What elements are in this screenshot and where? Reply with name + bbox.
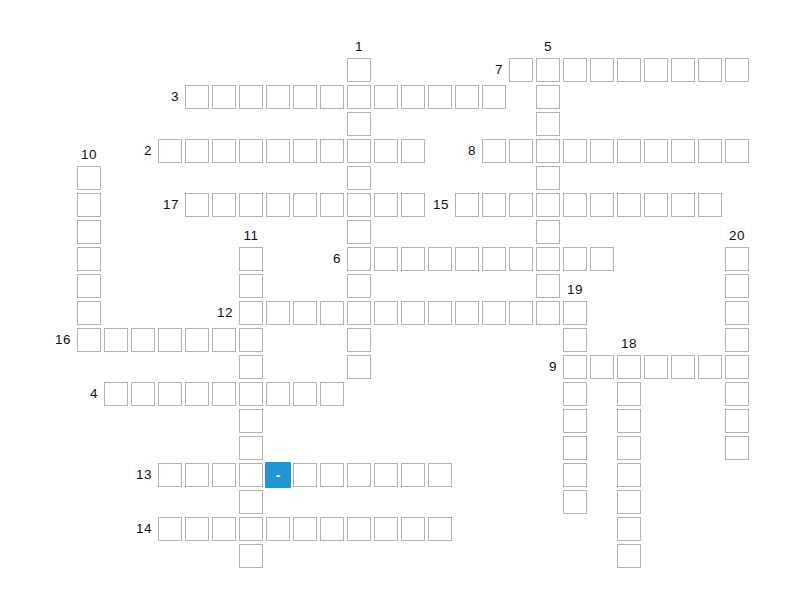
cell-19-7[interactable]: [563, 463, 587, 487]
cell-8-7[interactable]: [644, 139, 668, 163]
cell-7-3[interactable]: [563, 58, 587, 82]
cell-1-12[interactable]: [347, 355, 371, 379]
cell-14-9[interactable]: [374, 517, 398, 541]
cell-2-3[interactable]: [212, 139, 236, 163]
cell-6-6[interactable]: [482, 247, 506, 271]
cell-8-10[interactable]: [725, 139, 749, 163]
cell-5-3[interactable]: [536, 112, 560, 136]
cell-6-9[interactable]: [563, 247, 587, 271]
cell-13-3[interactable]: [212, 463, 236, 487]
cell-11-7[interactable]: [239, 409, 263, 433]
cell-20-4[interactable]: [725, 328, 749, 352]
cell-5-4[interactable]: [536, 139, 560, 163]
cell-17-5[interactable]: [293, 193, 317, 217]
cell-7-4[interactable]: [590, 58, 614, 82]
cell-8-8[interactable]: [671, 139, 695, 163]
cell-4-4[interactable]: [185, 382, 209, 406]
cell-5-6[interactable]: [536, 193, 560, 217]
cell-15-7[interactable]: [617, 193, 641, 217]
cell-4-8[interactable]: [293, 382, 317, 406]
crossword-board: - 1234567891011121314151617181920: [0, 0, 800, 600]
cell-12-7[interactable]: [401, 301, 425, 325]
cell-20-2[interactable]: [725, 274, 749, 298]
cell-9-6[interactable]: [698, 355, 722, 379]
cell-3-5[interactable]: [293, 85, 317, 109]
cell-14-3[interactable]: [212, 517, 236, 541]
cell-16-4[interactable]: [158, 328, 182, 352]
clue-3-label: 3: [127, 89, 179, 105]
cell-3-6[interactable]: [320, 85, 344, 109]
cell-17-9[interactable]: [401, 193, 425, 217]
cell-1-1[interactable]: [347, 58, 371, 82]
cell-18-3[interactable]: [617, 409, 641, 433]
cell-7-5[interactable]: [617, 58, 641, 82]
cell-19-5[interactable]: [563, 409, 587, 433]
clue-9-label: 9: [505, 359, 557, 375]
cell-14-5[interactable]: [266, 517, 290, 541]
cell-12-2[interactable]: [266, 301, 290, 325]
cell-17-8[interactable]: [374, 193, 398, 217]
cell-4-9[interactable]: [320, 382, 344, 406]
cell-5-8[interactable]: [536, 247, 560, 271]
cell-17-1[interactable]: [185, 193, 209, 217]
cell-15-9[interactable]: [671, 193, 695, 217]
cell-3-9[interactable]: [401, 85, 425, 109]
cell-6-5[interactable]: [455, 247, 479, 271]
clue-4-label: 4: [46, 386, 98, 402]
cell-20-8[interactable]: [725, 436, 749, 460]
cell-6-7[interactable]: [509, 247, 533, 271]
cell-19-2[interactable]: [563, 328, 587, 352]
clue-17-label: 17: [127, 197, 179, 213]
clue-6-label: 6: [289, 251, 341, 267]
cell-12-3[interactable]: [293, 301, 317, 325]
clue-1-label: 1: [333, 39, 385, 55]
cell-2-7[interactable]: [320, 139, 344, 163]
cell-3-10[interactable]: [428, 85, 452, 109]
cell-11-8[interactable]: [239, 436, 263, 460]
cell-1-7[interactable]: [347, 220, 371, 244]
active-cell-cursor: -: [276, 468, 281, 482]
cell-12-6[interactable]: [374, 301, 398, 325]
cell-2-4[interactable]: [239, 139, 263, 163]
cell-15-6[interactable]: [590, 193, 614, 217]
cell-11-1[interactable]: [239, 247, 263, 271]
cell-1-9[interactable]: [347, 274, 371, 298]
cell-18-5[interactable]: [617, 463, 641, 487]
clue-18-label: 18: [603, 336, 655, 352]
cell-8-4[interactable]: [563, 139, 587, 163]
cell-1-4[interactable]: [347, 139, 371, 163]
cell-11-9[interactable]: [239, 463, 263, 487]
cell-1-2[interactable]: [347, 85, 371, 109]
cell-9-4[interactable]: [644, 355, 668, 379]
cell-14-8[interactable]: [347, 517, 371, 541]
cell-3-1[interactable]: [185, 85, 209, 109]
cell-10-3[interactable]: [77, 220, 101, 244]
cell-8-1[interactable]: [482, 139, 506, 163]
cell-15-1[interactable]: [455, 193, 479, 217]
cell-12-4[interactable]: [320, 301, 344, 325]
cell-8-5[interactable]: [590, 139, 614, 163]
cell-5-7[interactable]: [536, 220, 560, 244]
cell-2-1[interactable]: [158, 139, 182, 163]
cell-10-4[interactable]: [77, 247, 101, 271]
cell-4-6[interactable]: [239, 382, 263, 406]
cell-14-10[interactable]: [401, 517, 425, 541]
cell-2-5[interactable]: [266, 139, 290, 163]
cell-19-6[interactable]: [563, 436, 587, 460]
cell-3-11[interactable]: [455, 85, 479, 109]
cell-3-8[interactable]: [374, 85, 398, 109]
cell-2-10[interactable]: [401, 139, 425, 163]
cell-9-3[interactable]: [617, 355, 641, 379]
clue-19-label: 19: [549, 282, 601, 298]
active-cell[interactable]: -: [265, 462, 291, 488]
clue-5-label: 5: [522, 39, 574, 55]
cell-13-6[interactable]: [293, 463, 317, 487]
cell-17-6[interactable]: [320, 193, 344, 217]
cell-2-6[interactable]: [293, 139, 317, 163]
cell-9-1[interactable]: [563, 355, 587, 379]
cell-3-3[interactable]: [239, 85, 263, 109]
cell-10-1[interactable]: [77, 166, 101, 190]
cell-18-2[interactable]: [617, 382, 641, 406]
cell-16-2[interactable]: [104, 328, 128, 352]
cell-18-6[interactable]: [617, 490, 641, 514]
cell-4-5[interactable]: [212, 382, 236, 406]
cell-14-11[interactable]: [428, 517, 452, 541]
cell-12-10[interactable]: [482, 301, 506, 325]
cell-10-7[interactable]: [77, 328, 101, 352]
cell-7-6[interactable]: [644, 58, 668, 82]
cell-6-10[interactable]: [590, 247, 614, 271]
cell-17-3[interactable]: [239, 193, 263, 217]
cell-13-1[interactable]: [158, 463, 182, 487]
cell-10-2[interactable]: [77, 193, 101, 217]
cell-13-9[interactable]: [374, 463, 398, 487]
cell-15-8[interactable]: [644, 193, 668, 217]
cell-20-6[interactable]: [725, 382, 749, 406]
cell-13-10[interactable]: [401, 463, 425, 487]
cell-14-2[interactable]: [185, 517, 209, 541]
cell-15-5[interactable]: [563, 193, 587, 217]
cell-12-9[interactable]: [455, 301, 479, 325]
cell-14-1[interactable]: [158, 517, 182, 541]
cell-16-5[interactable]: [185, 328, 209, 352]
cell-2-2[interactable]: [185, 139, 209, 163]
cell-11-5[interactable]: [239, 355, 263, 379]
cell-7-8[interactable]: [698, 58, 722, 82]
cell-14-7[interactable]: [320, 517, 344, 541]
cell-15-10[interactable]: [698, 193, 722, 217]
cell-13-7[interactable]: [320, 463, 344, 487]
cell-10-6[interactable]: [77, 301, 101, 325]
cell-4-7[interactable]: [266, 382, 290, 406]
cell-1-11[interactable]: [347, 328, 371, 352]
cell-8-6[interactable]: [617, 139, 641, 163]
cell-9-2[interactable]: [590, 355, 614, 379]
cell-20-1[interactable]: [725, 247, 749, 271]
clue-10-label: 10: [63, 147, 115, 163]
cell-8-9[interactable]: [698, 139, 722, 163]
cell-16-6[interactable]: [212, 328, 236, 352]
cell-11-2[interactable]: [239, 274, 263, 298]
cell-3-12[interactable]: [482, 85, 506, 109]
cell-1-5[interactable]: [347, 166, 371, 190]
cell-4-3[interactable]: [158, 382, 182, 406]
cell-14-6[interactable]: [293, 517, 317, 541]
cell-1-6[interactable]: [347, 193, 371, 217]
cell-11-3[interactable]: [239, 301, 263, 325]
cell-2-9[interactable]: [374, 139, 398, 163]
cell-6-2[interactable]: [374, 247, 398, 271]
cell-7-7[interactable]: [671, 58, 695, 82]
cell-5-1[interactable]: [536, 58, 560, 82]
cell-17-4[interactable]: [266, 193, 290, 217]
cell-7-9[interactable]: [725, 58, 749, 82]
cell-1-3[interactable]: [347, 112, 371, 136]
cell-12-8[interactable]: [428, 301, 452, 325]
cell-7-1[interactable]: [509, 58, 533, 82]
clue-13-label: 13: [100, 467, 152, 483]
cell-3-4[interactable]: [266, 85, 290, 109]
cell-15-3[interactable]: [509, 193, 533, 217]
clue-16-label: 16: [19, 332, 71, 348]
cell-8-2[interactable]: [509, 139, 533, 163]
cell-11-4[interactable]: [239, 328, 263, 352]
cell-20-7[interactable]: [725, 409, 749, 433]
cell-18-7[interactable]: [617, 517, 641, 541]
clue-7-label: 7: [451, 62, 503, 78]
cell-10-5[interactable]: [77, 274, 101, 298]
cell-16-3[interactable]: [131, 328, 155, 352]
clue-12-label: 12: [181, 305, 233, 321]
cell-19-4[interactable]: [563, 382, 587, 406]
cell-6-4[interactable]: [428, 247, 452, 271]
clue-14-label: 14: [100, 521, 152, 537]
cell-5-10[interactable]: [536, 301, 560, 325]
cell-17-2[interactable]: [212, 193, 236, 217]
cell-12-11[interactable]: [509, 301, 533, 325]
cell-5-5[interactable]: [536, 166, 560, 190]
cell-15-2[interactable]: [482, 193, 506, 217]
cell-6-3[interactable]: [401, 247, 425, 271]
clue-11-label: 11: [225, 228, 277, 244]
cell-1-8[interactable]: [347, 247, 371, 271]
cell-11-12[interactable]: [239, 544, 263, 568]
cell-12-13[interactable]: [563, 301, 587, 325]
cell-11-11[interactable]: [239, 517, 263, 541]
cell-13-11[interactable]: [428, 463, 452, 487]
cell-13-2[interactable]: [185, 463, 209, 487]
cell-5-2[interactable]: [536, 85, 560, 109]
clue-8-label: 8: [424, 143, 476, 159]
cell-13-8[interactable]: [347, 463, 371, 487]
cell-11-10[interactable]: [239, 490, 263, 514]
cell-3-2[interactable]: [212, 85, 236, 109]
cell-18-8[interactable]: [617, 544, 641, 568]
cell-18-4[interactable]: [617, 436, 641, 460]
cell-9-5[interactable]: [671, 355, 695, 379]
clue-20-label: 20: [711, 228, 763, 244]
cell-19-8[interactable]: [563, 490, 587, 514]
cell-1-10[interactable]: [347, 301, 371, 325]
cell-9-7[interactable]: [725, 355, 749, 379]
cell-4-1[interactable]: [104, 382, 128, 406]
cell-20-3[interactable]: [725, 301, 749, 325]
cell-4-2[interactable]: [131, 382, 155, 406]
